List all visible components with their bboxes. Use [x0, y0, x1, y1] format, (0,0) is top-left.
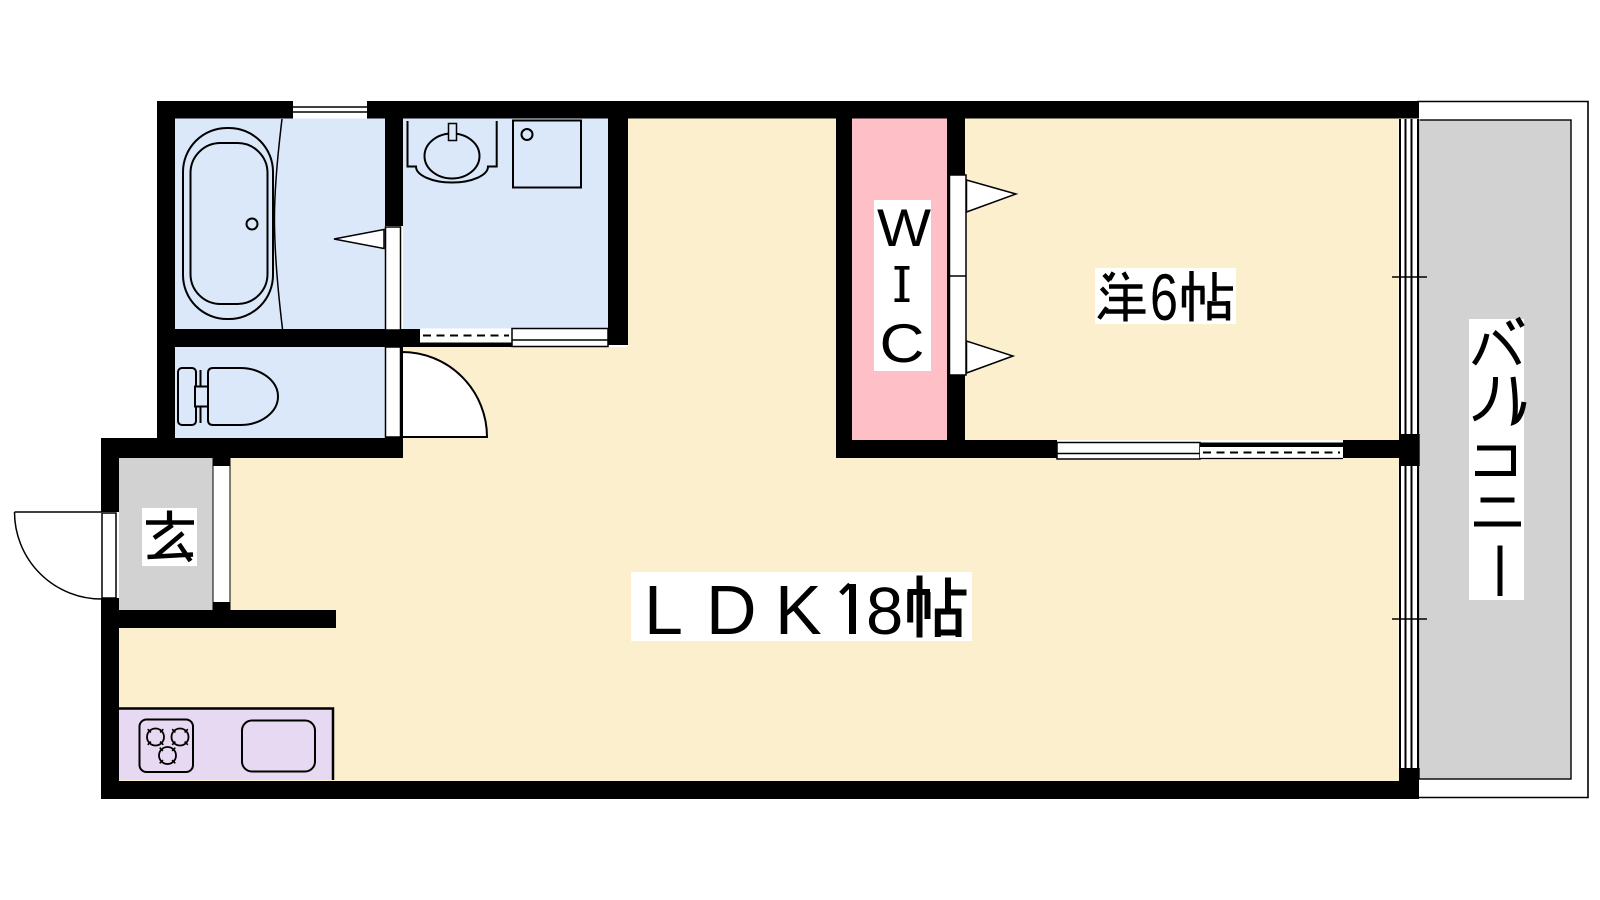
svg-text:D: D — [706, 571, 757, 649]
svg-text:W: W — [877, 199, 931, 258]
svg-text:C: C — [880, 312, 925, 374]
svg-text:I: I — [895, 256, 909, 314]
svg-text:8: 8 — [866, 574, 903, 649]
svg-text:K: K — [775, 571, 822, 649]
svg-text:L: L — [644, 571, 683, 649]
svg-text:6: 6 — [1150, 260, 1178, 334]
